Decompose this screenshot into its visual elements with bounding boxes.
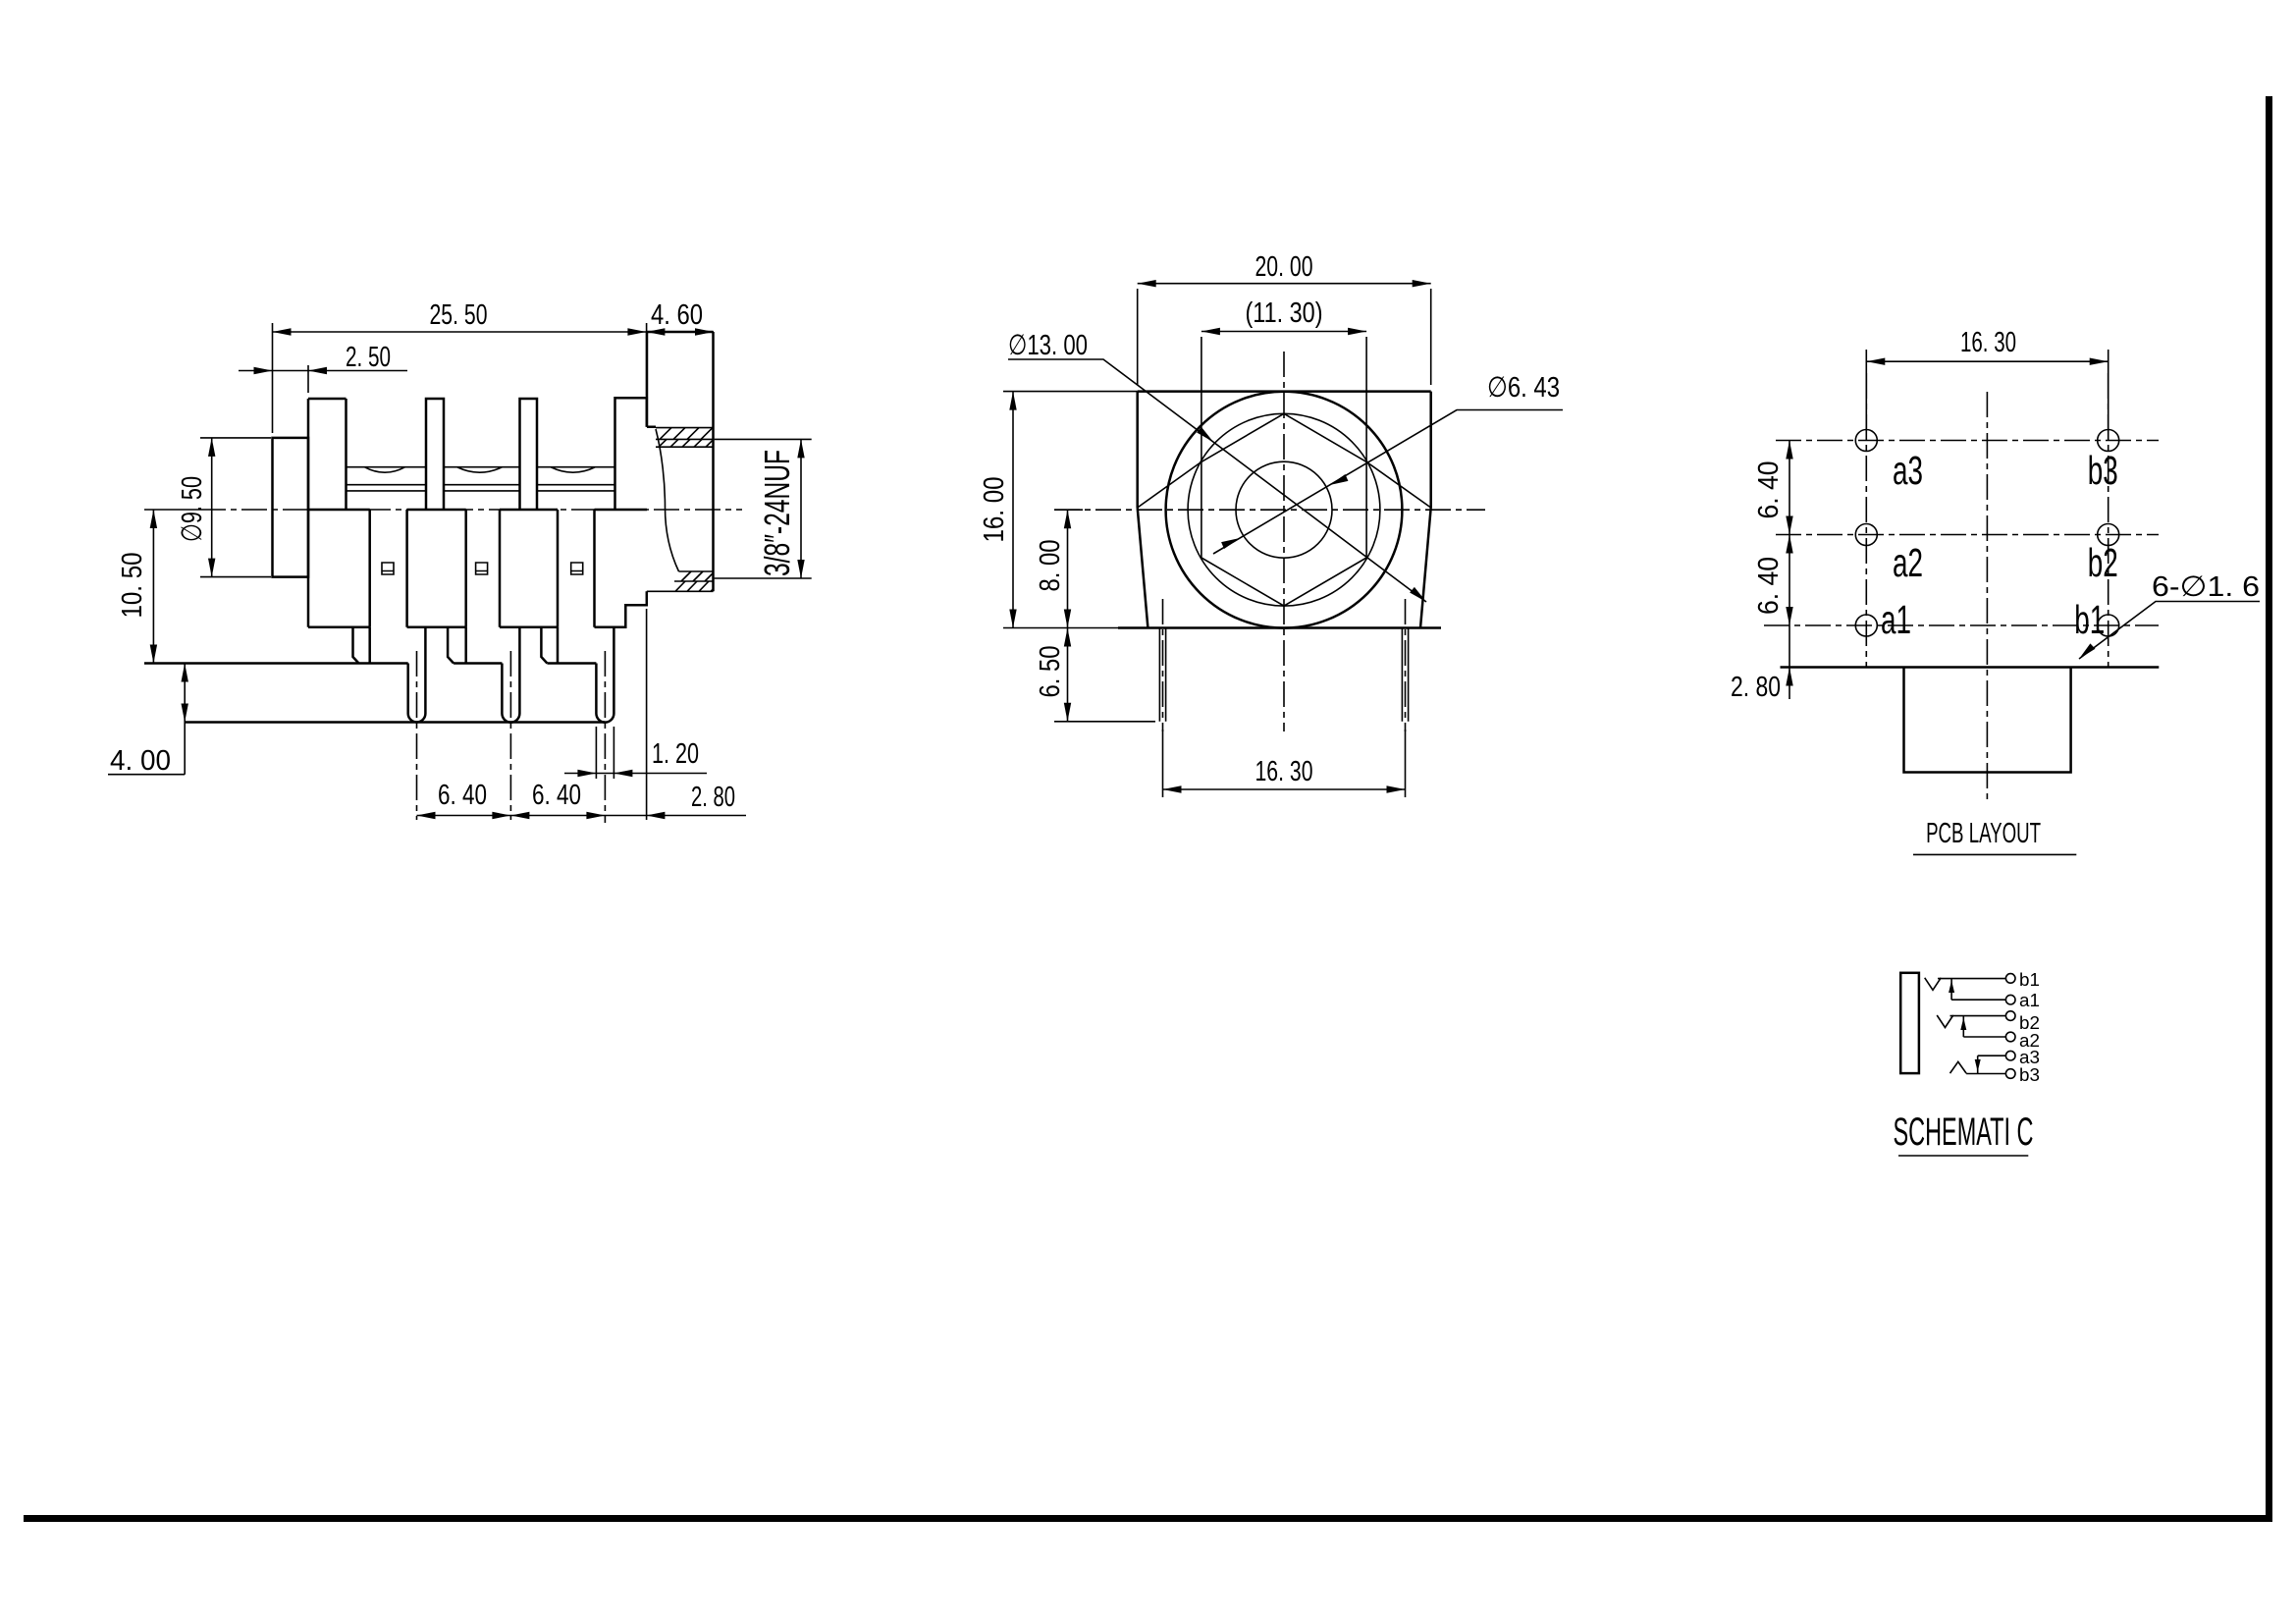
svg-text:b3: b3 <box>2019 1065 2040 1085</box>
svg-text:10. 50: 10. 50 <box>117 553 148 619</box>
svg-text:25. 50: 25. 50 <box>430 299 488 331</box>
svg-text:8. 00: 8. 00 <box>1035 540 1066 592</box>
svg-text:b2: b2 <box>2088 540 2118 585</box>
svg-text:20. 00: 20. 00 <box>1255 251 1313 283</box>
svg-text:a3: a3 <box>1893 448 1923 493</box>
svg-text:6. 40: 6. 40 <box>1753 557 1785 615</box>
svg-text:∅6. 43: ∅6. 43 <box>1487 372 1560 404</box>
svg-text:6. 40: 6. 40 <box>532 780 581 811</box>
svg-text:b1: b1 <box>2019 970 2040 990</box>
svg-text:a3: a3 <box>2019 1048 2040 1067</box>
svg-text:2. 80: 2. 80 <box>1731 672 1781 703</box>
svg-text:b3: b3 <box>2088 448 2118 493</box>
svg-text:16. 00: 16. 00 <box>979 477 1010 543</box>
svg-text:b2: b2 <box>2019 1013 2040 1033</box>
svg-text:2. 50: 2. 50 <box>346 342 391 373</box>
svg-text:6. 50: 6. 50 <box>1035 646 1066 698</box>
svg-text:PCB LAYOUT: PCB LAYOUT <box>1926 818 2041 849</box>
svg-text:4. 60: 4. 60 <box>651 299 703 331</box>
svg-text:1. 20: 1. 20 <box>652 738 699 770</box>
svg-text:16. 30: 16. 30 <box>1255 756 1313 787</box>
svg-text:∅13. 00: ∅13. 00 <box>1008 330 1088 361</box>
svg-text:4. 00: 4. 00 <box>110 745 171 777</box>
svg-text:a1: a1 <box>1881 597 1911 642</box>
svg-text:SCHEMATI C: SCHEMATI C <box>1894 1110 2034 1154</box>
svg-text:6-∅1. 6: 6-∅1. 6 <box>2152 571 2260 603</box>
svg-text:(11. 30): (11. 30) <box>1246 298 1323 329</box>
svg-text:2. 80: 2. 80 <box>691 782 735 813</box>
svg-text:a1: a1 <box>2019 991 2040 1010</box>
svg-text:b1: b1 <box>2074 597 2105 642</box>
svg-text:16. 30: 16. 30 <box>1960 327 2016 358</box>
svg-text:a2: a2 <box>1893 540 1923 585</box>
svg-text:6. 40: 6. 40 <box>438 780 487 811</box>
svg-text:3/8″-24NUF: 3/8″-24NUF <box>757 450 797 576</box>
svg-text:6. 40: 6. 40 <box>1753 461 1785 519</box>
